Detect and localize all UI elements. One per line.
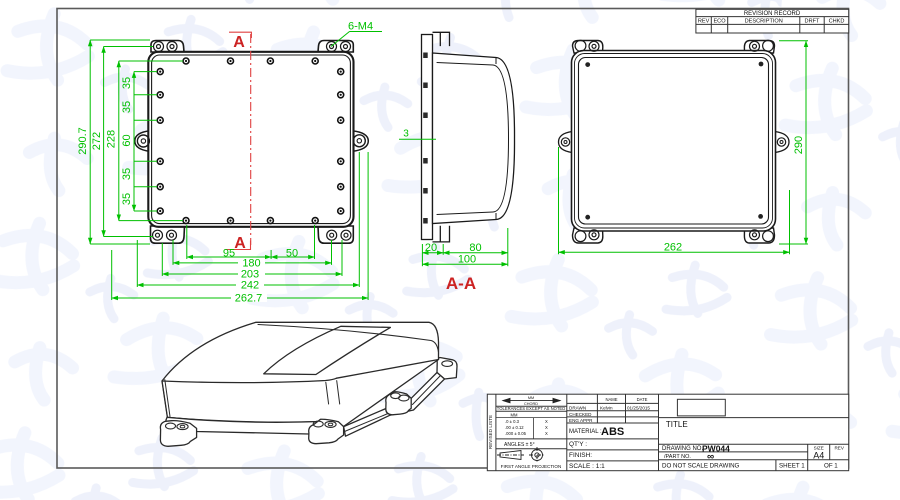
svg-text:290.7: 290.7 <box>77 127 89 155</box>
svg-text:262.7: 262.7 <box>235 292 263 304</box>
svg-text:CHORD: CHORD <box>524 402 538 406</box>
svg-text:DATE: DATE <box>637 397 648 402</box>
svg-text:A: A <box>233 34 245 51</box>
svg-text:228: 228 <box>106 130 118 148</box>
svg-text:X: X <box>545 419 548 424</box>
svg-text:A-A: A-A <box>446 274 476 293</box>
svg-text:ANGLES ± 5°: ANGLES ± 5° <box>504 442 535 448</box>
svg-text:01/25/2015: 01/25/2015 <box>627 405 650 410</box>
svg-text:QT'Y :: QT'Y : <box>569 441 587 448</box>
svg-text:6-M4: 6-M4 <box>348 21 373 33</box>
svg-text:35: 35 <box>121 168 133 180</box>
svg-text:A: A <box>234 235 246 252</box>
svg-text:X: X <box>545 425 548 430</box>
svg-text:DRAWN: DRAWN <box>569 405 586 410</box>
svg-text:/PART NO.: /PART NO. <box>664 454 691 460</box>
svg-text:20: 20 <box>425 242 437 254</box>
svg-text:.00 ± 0.12: .00 ± 0.12 <box>505 425 524 430</box>
svg-text:35: 35 <box>121 77 133 89</box>
svg-text:REV: REV <box>834 446 844 451</box>
svg-text:DRAWING NO.: DRAWING NO. <box>662 446 703 452</box>
svg-text:DO NOT SCALE DRAWING: DO NOT SCALE DRAWING <box>662 462 740 469</box>
svg-text:.000 ± 0.05: .000 ± 0.05 <box>505 431 527 436</box>
svg-text:SCALE : 1:1: SCALE : 1:1 <box>569 463 605 470</box>
svg-text:ENG APPR: ENG APPR <box>569 418 593 423</box>
svg-text:Kelvin: Kelvin <box>600 405 613 410</box>
svg-text:35: 35 <box>121 193 133 205</box>
svg-text:290: 290 <box>793 136 805 154</box>
svg-text:.0 ± 0.3: .0 ± 0.3 <box>505 419 520 424</box>
svg-text:X: X <box>545 431 548 436</box>
svg-text:DESCRIPTION: DESCRIPTION <box>745 19 783 25</box>
svg-text:MM: MM <box>511 412 518 417</box>
svg-text:TITLE: TITLE <box>666 420 688 429</box>
svg-text:MATERIAL :: MATERIAL : <box>569 429 602 435</box>
svg-text:TOLERANCES EXCEPT AS NOTED: TOLERANCES EXCEPT AS NOTED <box>497 406 566 411</box>
svg-text:ECO: ECO <box>713 19 726 25</box>
svg-text:A4: A4 <box>813 450 824 460</box>
svg-text:∞: ∞ <box>707 452 714 463</box>
svg-text:100: 100 <box>458 253 476 265</box>
svg-text:REV: REV <box>698 19 710 25</box>
svg-text:80: 80 <box>469 242 481 254</box>
svg-text:NAME: NAME <box>605 397 617 402</box>
svg-text:OF 1: OF 1 <box>824 462 838 469</box>
svg-text:FIRST ANGLE PROJECTION: FIRST ANGLE PROJECTION <box>501 464 562 469</box>
svg-text:CHECKED: CHECKED <box>569 412 592 417</box>
svg-text:272: 272 <box>91 132 103 150</box>
svg-text:50: 50 <box>286 248 298 260</box>
svg-text:35: 35 <box>121 101 133 113</box>
svg-text:242: 242 <box>241 279 259 291</box>
svg-text:CHKD: CHKD <box>829 19 845 25</box>
svg-text:MM: MM <box>528 396 534 400</box>
svg-text:SHEET 1: SHEET 1 <box>779 462 805 469</box>
svg-text:REVISED LISTE: REVISED LISTE <box>488 415 493 449</box>
svg-text:262: 262 <box>664 241 682 253</box>
svg-text:3: 3 <box>403 129 409 140</box>
svg-text:REVISION RECORD: REVISION RECORD <box>744 11 801 17</box>
svg-text:95: 95 <box>223 248 235 260</box>
svg-text:FINISH:: FINISH: <box>569 452 592 459</box>
svg-text:60: 60 <box>121 134 133 146</box>
svg-text:DRFT: DRFT <box>805 19 820 25</box>
svg-text:ABS: ABS <box>601 426 624 438</box>
